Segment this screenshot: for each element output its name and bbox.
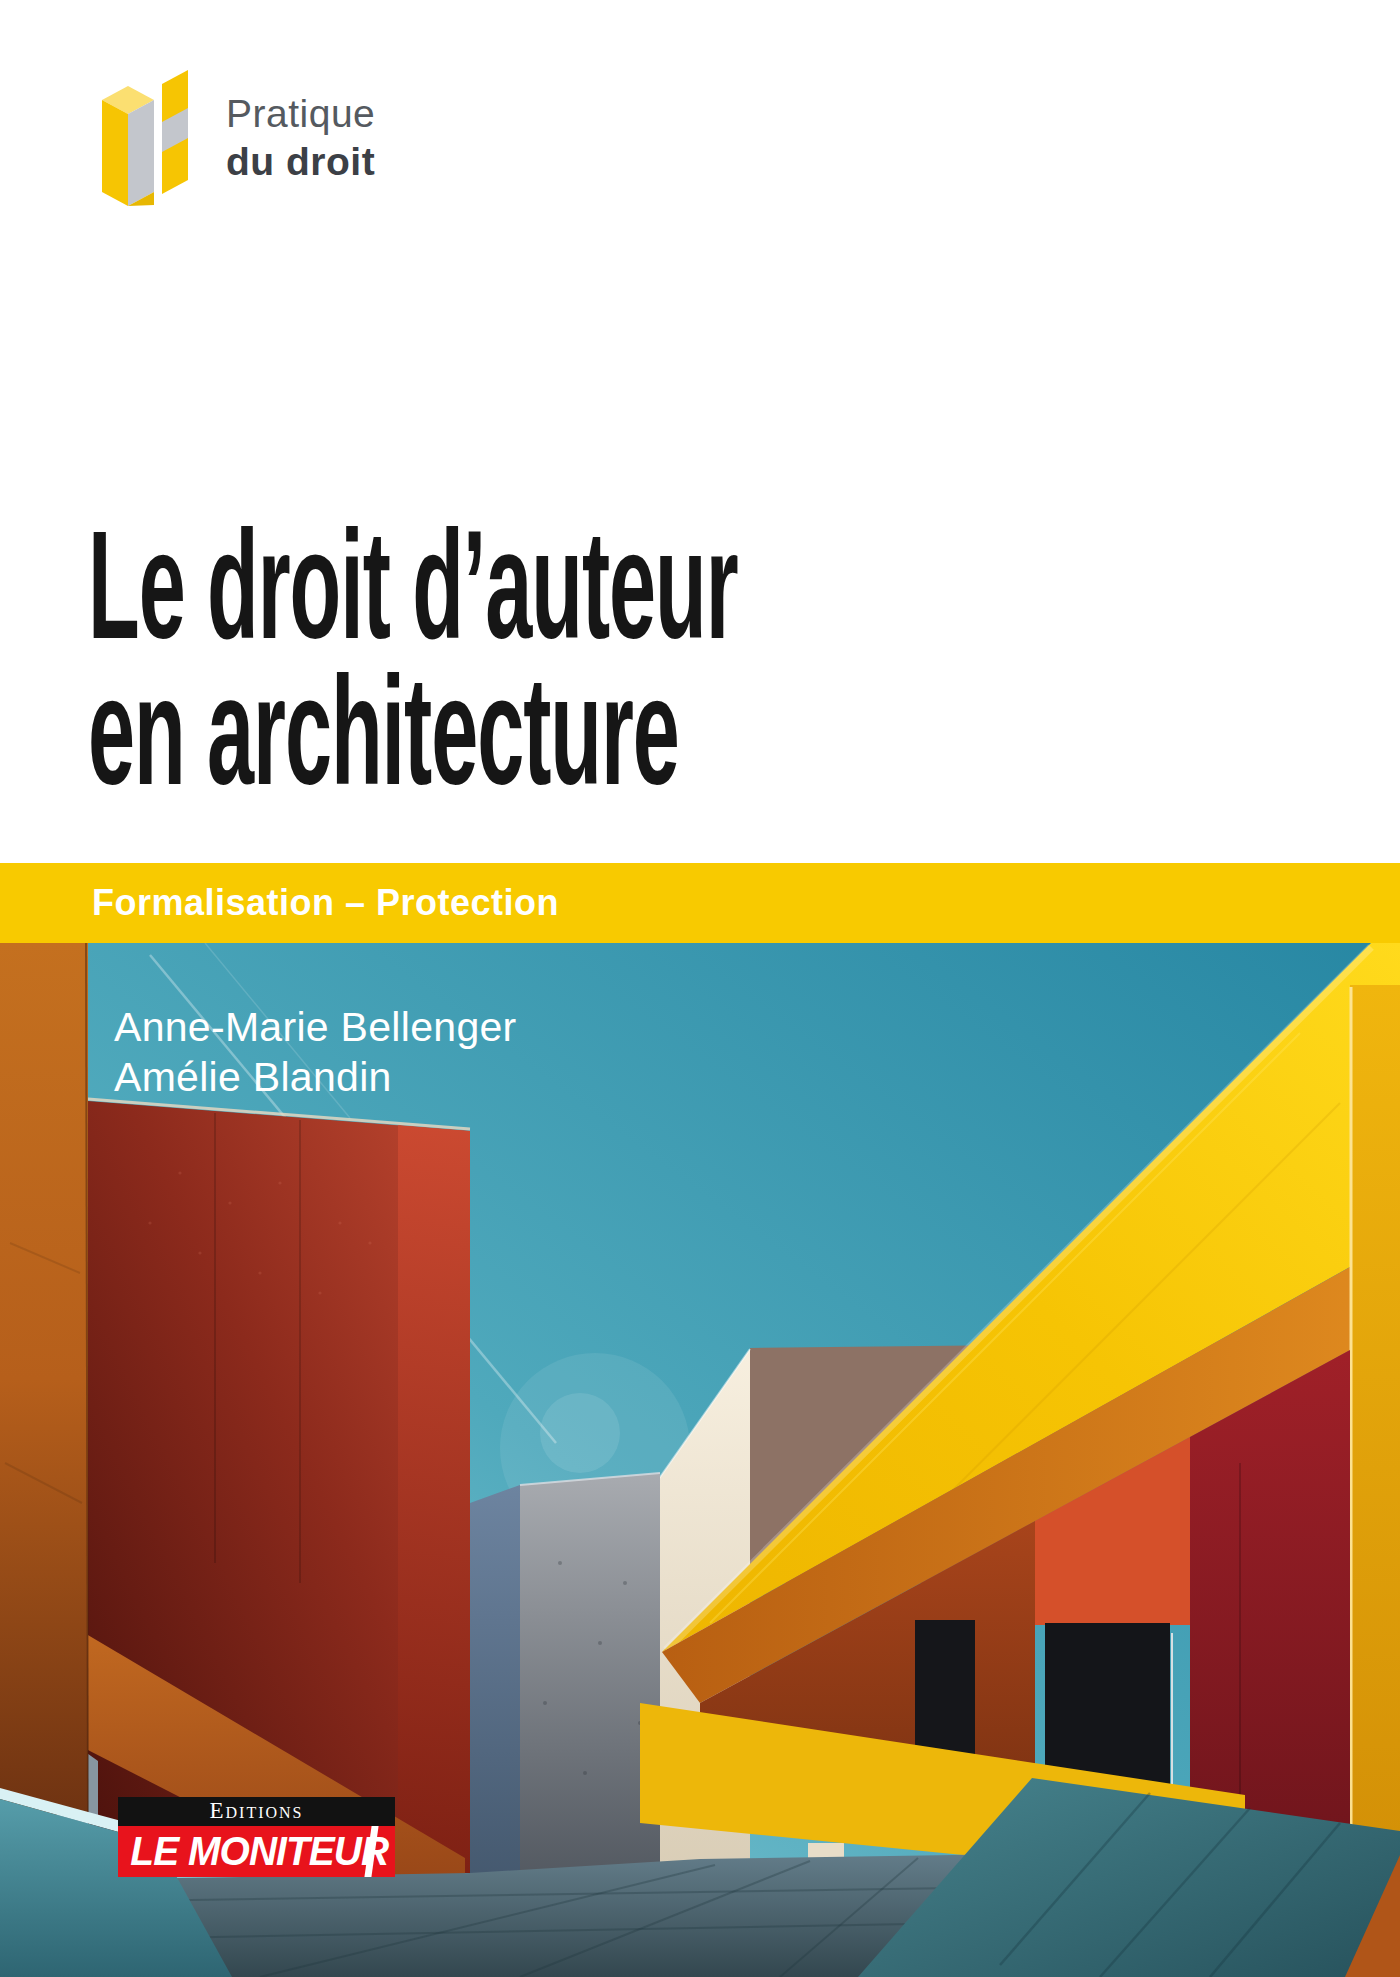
- author-name-1: Anne-Marie Bellenger: [114, 1002, 517, 1052]
- brand-name-top: Pratique: [226, 92, 375, 136]
- moniteur-wordmark: LE MONITEUR: [118, 1826, 381, 1876]
- subtitle-text: Formalisation – Protection: [0, 863, 1400, 943]
- orange-side-wall: [0, 943, 88, 1815]
- title-line-2: en architecture: [88, 658, 738, 804]
- title-line-1: Le droit d’auteur: [88, 512, 738, 658]
- brand-text: Pratique du droit: [226, 64, 375, 208]
- editions-bar: Editions: [118, 1797, 395, 1826]
- brand-logo: Pratique du droit: [80, 64, 375, 208]
- editions-label: Editions: [209, 1798, 303, 1823]
- doorway-large: [1045, 1623, 1170, 1788]
- book-cover-page: { "collection": { "line1": "Pratique", "…: [0, 0, 1400, 1977]
- moniteur-bar: LE MONITEUR: [118, 1826, 395, 1877]
- subtitle-banner: Formalisation – Protection: [0, 863, 1400, 943]
- book-cover: Pratique du droit Le droit d’auteur en a…: [0, 0, 1400, 1977]
- brand-name-bottom: du droit: [226, 140, 375, 184]
- publisher-logo: Editions LE MONITEUR: [118, 1797, 395, 1877]
- right-yellow-wall: [1350, 985, 1400, 1860]
- author-names: Anne-Marie Bellenger Amélie Blandin: [114, 1002, 517, 1102]
- author-name-2: Amélie Blandin: [114, 1052, 517, 1102]
- concrete-building: [470, 1473, 660, 1888]
- book-title: Le droit d’auteur en architecture: [88, 512, 738, 804]
- pratique-du-droit-icon: [80, 64, 212, 208]
